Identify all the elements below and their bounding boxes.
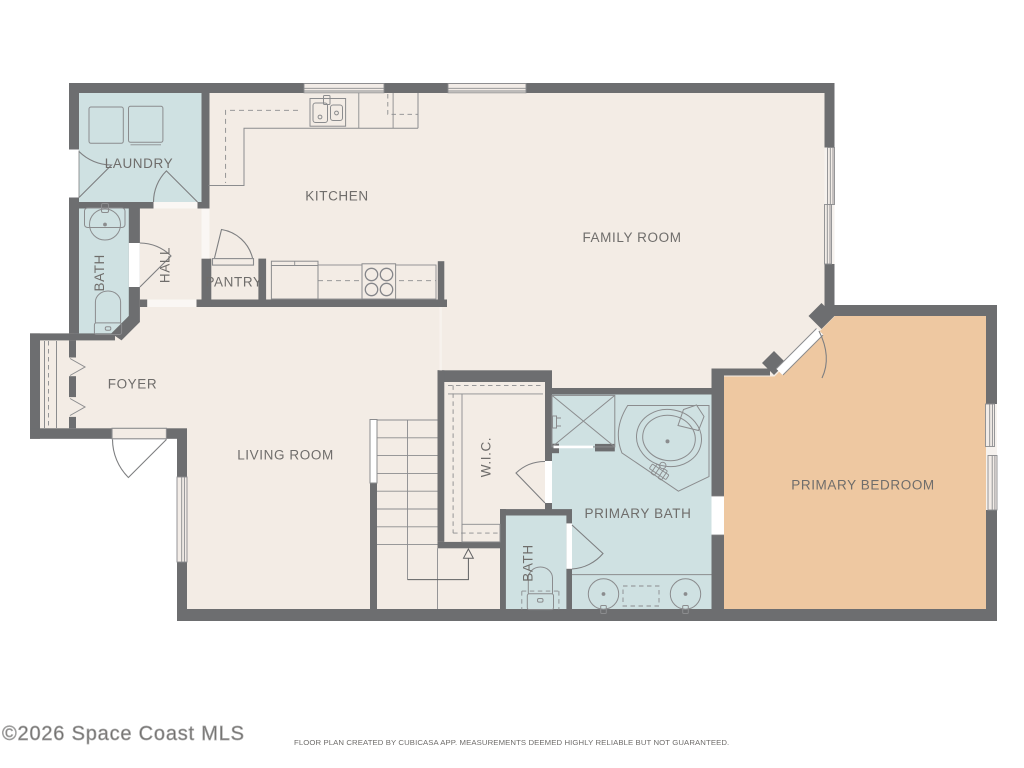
svg-text:W.I.C.: W.I.C. xyxy=(479,437,494,477)
svg-text:BATH: BATH xyxy=(521,544,536,581)
svg-text:PRIMARY BATH: PRIMARY BATH xyxy=(585,506,692,521)
svg-text:FOYER: FOYER xyxy=(108,377,158,392)
svg-text:PRIMARY BEDROOM: PRIMARY BEDROOM xyxy=(791,477,935,492)
svg-text:KITCHEN: KITCHEN xyxy=(305,189,368,204)
svg-text:FAMILY ROOM: FAMILY ROOM xyxy=(582,230,681,245)
svg-text:©2026 Space Coast MLS: ©2026 Space Coast MLS xyxy=(2,723,245,745)
svg-text:PANTRY: PANTRY xyxy=(205,274,262,289)
svg-text:HALL: HALL xyxy=(158,247,173,283)
svg-text:BATH: BATH xyxy=(92,254,107,291)
svg-text:LAUNDRY: LAUNDRY xyxy=(105,156,173,171)
svg-text:FLOOR PLAN CREATED BY CUBICASA: FLOOR PLAN CREATED BY CUBICASA APP. MEAS… xyxy=(294,738,729,747)
svg-text:LIVING ROOM: LIVING ROOM xyxy=(237,448,334,463)
